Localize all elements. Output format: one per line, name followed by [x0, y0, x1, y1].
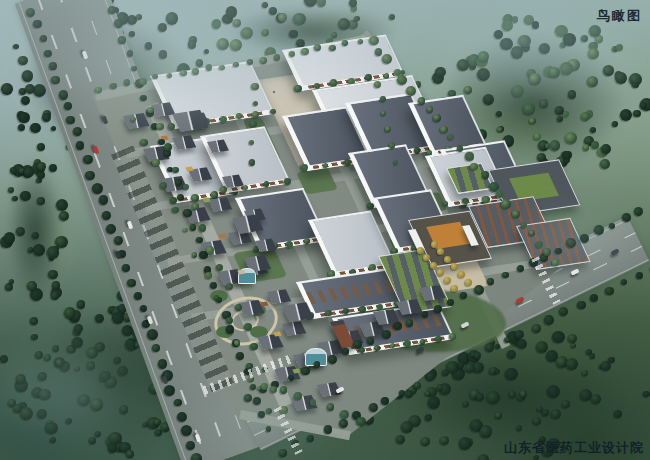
- tree-icon: [212, 19, 222, 29]
- tree-icon: [539, 43, 550, 54]
- tree-icon: [594, 225, 604, 235]
- tree-icon: [56, 359, 63, 366]
- tree-icon: [566, 238, 575, 247]
- tree-icon: [457, 59, 469, 71]
- tree-icon: [192, 252, 197, 257]
- tree-icon: [583, 144, 590, 151]
- tree-icon: [191, 194, 198, 201]
- tree-icon: [430, 262, 437, 269]
- tree-icon: [110, 83, 116, 89]
- tree-icon: [591, 394, 601, 404]
- tree-icon: [324, 425, 332, 433]
- tree-icon: [35, 351, 43, 359]
- tree-icon: [278, 13, 286, 21]
- tree-icon: [435, 336, 442, 343]
- tree-icon: [166, 12, 178, 24]
- scene-canvas: [0, 0, 650, 460]
- tree-icon: [385, 126, 391, 132]
- tree-icon: [191, 453, 202, 460]
- tree-icon: [327, 403, 334, 410]
- tree-icon: [24, 167, 34, 177]
- market-stall: [185, 166, 193, 171]
- tree-icon: [47, 246, 59, 258]
- tree-icon: [139, 78, 146, 85]
- tree-icon: [477, 68, 490, 81]
- tree-icon: [114, 357, 121, 364]
- tree-icon: [547, 385, 560, 398]
- tree-icon: [505, 368, 518, 381]
- tree-icon: [158, 359, 167, 368]
- tree-icon: [501, 199, 511, 209]
- tree-icon: [375, 48, 382, 55]
- tree-icon: [261, 383, 268, 390]
- tree-icon: [33, 20, 41, 28]
- tree-icon: [192, 203, 198, 209]
- tree-icon: [459, 437, 471, 449]
- tree-icon: [175, 179, 181, 185]
- tree-icon: [369, 403, 378, 412]
- tree-icon: [220, 116, 227, 123]
- tree-icon: [51, 291, 60, 300]
- tree-icon: [152, 159, 159, 166]
- tree-icon: [496, 190, 504, 198]
- tree-icon: [136, 14, 142, 20]
- tree-icon: [140, 305, 147, 312]
- tree-icon: [83, 155, 92, 164]
- tree-icon: [206, 246, 214, 254]
- tree-icon: [50, 437, 56, 443]
- tree-icon: [329, 45, 336, 52]
- tree-icon: [389, 14, 395, 20]
- tree-icon: [338, 18, 350, 30]
- tree-icon: [56, 199, 68, 211]
- tree-icon: [458, 271, 465, 278]
- tree-icon: [515, 330, 524, 339]
- tree-icon: [343, 308, 349, 314]
- tree-icon: [205, 272, 212, 279]
- tree-icon: [48, 270, 57, 279]
- tree-icon: [555, 248, 562, 255]
- tree-icon: [465, 152, 473, 160]
- tree-icon: [369, 36, 379, 46]
- tree-icon: [476, 393, 483, 400]
- tree-icon: [37, 197, 45, 205]
- tree-icon: [339, 419, 348, 428]
- tree-icon: [562, 400, 570, 408]
- tree-icon: [511, 46, 524, 59]
- tree-icon: [325, 310, 331, 316]
- tree-icon: [219, 65, 224, 70]
- tree-icon: [563, 111, 569, 117]
- tree-icon: [390, 343, 395, 348]
- tree-icon: [114, 19, 122, 27]
- tree-icon: [118, 366, 128, 376]
- tree-icon: [95, 314, 104, 323]
- tree-icon: [621, 279, 627, 285]
- tree-icon: [73, 127, 82, 136]
- tree-icon: [114, 236, 123, 245]
- tree-icon: [226, 317, 233, 324]
- tree-icon: [367, 203, 374, 210]
- tree-icon: [600, 159, 609, 168]
- tree-icon: [167, 73, 172, 78]
- view-title-label: 鸟瞰图: [597, 7, 642, 25]
- tree-icon: [196, 59, 204, 67]
- tree-icon: [233, 62, 239, 68]
- tree-icon: [39, 389, 51, 401]
- tree-icon: [460, 292, 467, 299]
- tree-icon: [502, 20, 513, 31]
- tree-icon: [605, 287, 613, 295]
- tree-icon: [643, 391, 650, 398]
- tree-icon: [365, 74, 371, 80]
- tree-icon: [551, 409, 561, 419]
- tree-icon: [463, 401, 469, 407]
- tree-icon: [422, 311, 429, 318]
- tree-icon: [250, 121, 256, 127]
- tree-icon: [374, 81, 381, 88]
- tree-icon: [474, 352, 481, 359]
- tree-icon: [428, 396, 441, 409]
- tree-icon: [568, 90, 577, 99]
- tree-icon: [102, 211, 111, 220]
- tree-icon: [494, 30, 503, 39]
- tree-icon: [279, 449, 286, 456]
- tree-icon: [91, 398, 103, 410]
- tree-icon: [192, 68, 199, 75]
- tree-icon: [532, 324, 540, 332]
- tree-icon: [523, 103, 535, 115]
- tree-icon: [458, 362, 464, 368]
- tree-icon: [172, 207, 179, 214]
- tree-icon: [293, 13, 306, 26]
- tree-icon: [536, 241, 543, 248]
- tree-icon: [76, 141, 84, 149]
- tree-icon: [397, 75, 406, 84]
- tree-icon: [258, 411, 264, 417]
- tree-icon: [367, 337, 375, 345]
- tree-icon: [301, 48, 308, 55]
- tree-icon: [59, 90, 69, 100]
- tree-icon: [444, 256, 451, 263]
- tree-icon: [177, 412, 187, 422]
- tree-icon: [393, 322, 402, 331]
- tree-icon: [581, 112, 590, 121]
- tree-icon: [118, 36, 126, 44]
- tree-icon: [609, 223, 615, 229]
- tree-icon: [20, 407, 33, 420]
- tree-icon: [615, 72, 627, 84]
- tree-icon: [557, 116, 563, 122]
- tree-icon: [552, 259, 558, 265]
- tree-icon: [563, 33, 576, 46]
- tree-icon: [301, 367, 310, 376]
- tree-icon: [487, 278, 494, 285]
- tree-icon: [66, 418, 72, 424]
- tree-icon: [152, 74, 157, 79]
- tree-icon: [180, 70, 186, 76]
- tree-icon: [382, 330, 391, 339]
- tree-icon: [95, 87, 102, 94]
- tree-icon: [560, 62, 573, 75]
- tree-icon: [280, 386, 288, 394]
- tree-icon: [87, 361, 96, 370]
- tree-icon: [332, 32, 337, 37]
- tree-icon: [552, 331, 565, 344]
- tree-icon: [512, 210, 520, 218]
- tree-icon: [188, 40, 196, 48]
- tree-icon: [389, 142, 395, 148]
- tree-icon: [154, 419, 160, 425]
- tree-icon: [0, 355, 8, 363]
- tree-icon: [462, 198, 468, 204]
- tree-icon: [356, 417, 365, 426]
- tree-icon: [380, 96, 386, 102]
- tree-icon: [260, 57, 267, 64]
- tree-icon: [603, 65, 614, 76]
- tree-icon: [529, 118, 535, 124]
- tree-icon: [482, 196, 489, 203]
- tree-icon: [172, 167, 178, 173]
- tree-icon: [127, 279, 135, 287]
- tree-icon: [440, 126, 447, 133]
- tree-icon: [632, 82, 638, 88]
- tree-icon: [127, 50, 133, 56]
- tree-icon: [120, 405, 128, 413]
- tree-icon: [406, 86, 416, 96]
- tree-icon: [520, 390, 527, 397]
- tree-icon: [183, 184, 189, 190]
- tree-icon: [294, 85, 301, 92]
- tree-icon: [249, 159, 255, 165]
- tree-icon: [483, 94, 494, 105]
- tree-icon: [10, 167, 17, 174]
- tree-icon: [590, 127, 596, 133]
- tree-icon: [359, 306, 365, 312]
- tree-icon: [435, 67, 446, 78]
- tree-icon: [425, 391, 431, 397]
- tree-icon: [427, 106, 433, 112]
- tree-icon: [37, 162, 46, 171]
- tree-icon: [444, 277, 451, 284]
- tree-icon: [342, 40, 348, 46]
- tree-icon: [633, 110, 640, 117]
- tree-icon: [147, 107, 153, 113]
- tree-icon: [108, 6, 116, 14]
- tree-icon: [4, 232, 15, 243]
- tree-icon: [64, 102, 72, 110]
- aerial-rendering-frame: 鸟瞰图 山东省医药工业设计院: [0, 0, 650, 460]
- tree-icon: [87, 347, 98, 358]
- tree-icon: [344, 159, 351, 166]
- tree-icon: [636, 272, 643, 279]
- tree-icon: [536, 341, 548, 353]
- tree-icon: [28, 247, 33, 252]
- tree-icon: [286, 241, 293, 248]
- tree-icon: [77, 300, 86, 309]
- tree-icon: [186, 441, 195, 450]
- tree-icon: [204, 49, 209, 54]
- tree-icon: [66, 116, 75, 125]
- tree-icon: [274, 54, 280, 60]
- tree-icon: [53, 345, 59, 351]
- tree-icon: [614, 410, 622, 418]
- tree-icon: [1, 83, 12, 94]
- tree-icon: [33, 244, 45, 256]
- tree-icon: [27, 281, 37, 291]
- tree-icon: [49, 62, 57, 70]
- tree-icon: [289, 30, 297, 38]
- tree-icon: [431, 241, 438, 248]
- tree-icon: [447, 299, 454, 306]
- tree-icon: [451, 285, 458, 292]
- tree-icon: [181, 425, 192, 436]
- tree-icon: [382, 54, 392, 64]
- tree-icon: [129, 31, 135, 37]
- tree-icon: [414, 382, 421, 389]
- tree-icon: [532, 21, 539, 28]
- tree-icon: [533, 417, 541, 425]
- tree-icon: [314, 361, 321, 368]
- tree-icon: [89, 437, 96, 444]
- tree-icon: [307, 435, 314, 442]
- tree-icon: [544, 315, 553, 324]
- tree-icon: [559, 307, 568, 316]
- tree-icon: [140, 95, 146, 101]
- tree-icon: [485, 343, 493, 351]
- tree-icon: [52, 281, 61, 290]
- tree-icon: [381, 397, 388, 404]
- tree-icon: [140, 139, 147, 146]
- tree-icon: [565, 132, 577, 144]
- tree-icon: [482, 171, 490, 179]
- tree-icon: [640, 102, 647, 109]
- market-stall: [218, 234, 226, 239]
- tree-icon: [250, 343, 257, 350]
- tree-icon: [464, 86, 472, 94]
- tree-icon: [262, 2, 268, 8]
- tree-icon: [310, 399, 317, 406]
- tree-icon: [586, 349, 592, 355]
- tree-icon: [78, 394, 89, 405]
- tree-icon: [284, 178, 291, 185]
- tree-icon: [478, 454, 489, 460]
- tree-icon: [38, 372, 47, 381]
- tree-icon: [457, 145, 464, 152]
- tree-icon: [563, 151, 571, 159]
- tree-icon: [217, 38, 229, 50]
- tree-icon: [85, 171, 94, 180]
- tree-icon: [126, 450, 134, 458]
- tree-icon: [216, 264, 223, 271]
- tree-icon: [244, 394, 252, 402]
- tree-icon: [601, 361, 611, 371]
- tree-icon: [406, 319, 414, 327]
- tree-icon: [421, 437, 430, 446]
- tree-icon: [425, 414, 432, 421]
- tree-icon: [634, 207, 643, 216]
- tree-icon: [487, 391, 500, 404]
- tree-icon: [404, 340, 411, 347]
- tree-icon: [540, 99, 549, 108]
- tree-icon: [518, 35, 530, 47]
- tree-icon: [44, 50, 52, 58]
- tree-icon: [374, 345, 380, 351]
- tree-icon: [159, 50, 167, 58]
- tree-icon: [512, 85, 524, 97]
- tree-icon: [612, 121, 618, 127]
- tree-icon: [465, 279, 472, 286]
- tree-icon: [214, 295, 219, 300]
- tree-icon: [417, 247, 424, 254]
- tree-icon: [21, 96, 30, 105]
- tree-icon: [25, 84, 35, 94]
- tree-icon: [401, 421, 413, 433]
- tree-icon: [112, 312, 124, 324]
- tree-icon: [226, 325, 235, 334]
- tree-icon: [590, 294, 598, 302]
- tree-icon: [122, 264, 130, 272]
- tree-icon: [465, 363, 475, 373]
- tree-icon: [210, 282, 217, 289]
- tree-icon: [577, 301, 585, 309]
- tree-icon: [399, 390, 405, 396]
- tree-icon: [414, 147, 420, 153]
- tree-icon: [174, 399, 181, 406]
- tree-icon: [8, 187, 14, 193]
- tree-icon: [18, 56, 28, 66]
- tree-icon: [236, 113, 241, 118]
- tree-icon: [236, 352, 244, 360]
- tree-icon: [156, 123, 163, 130]
- tree-icon: [405, 390, 413, 398]
- designer-credit-label: 山东省医药工业设计院: [504, 439, 644, 457]
- tree-icon: [99, 195, 108, 204]
- tree-icon: [328, 355, 337, 364]
- tree-icon: [108, 443, 118, 453]
